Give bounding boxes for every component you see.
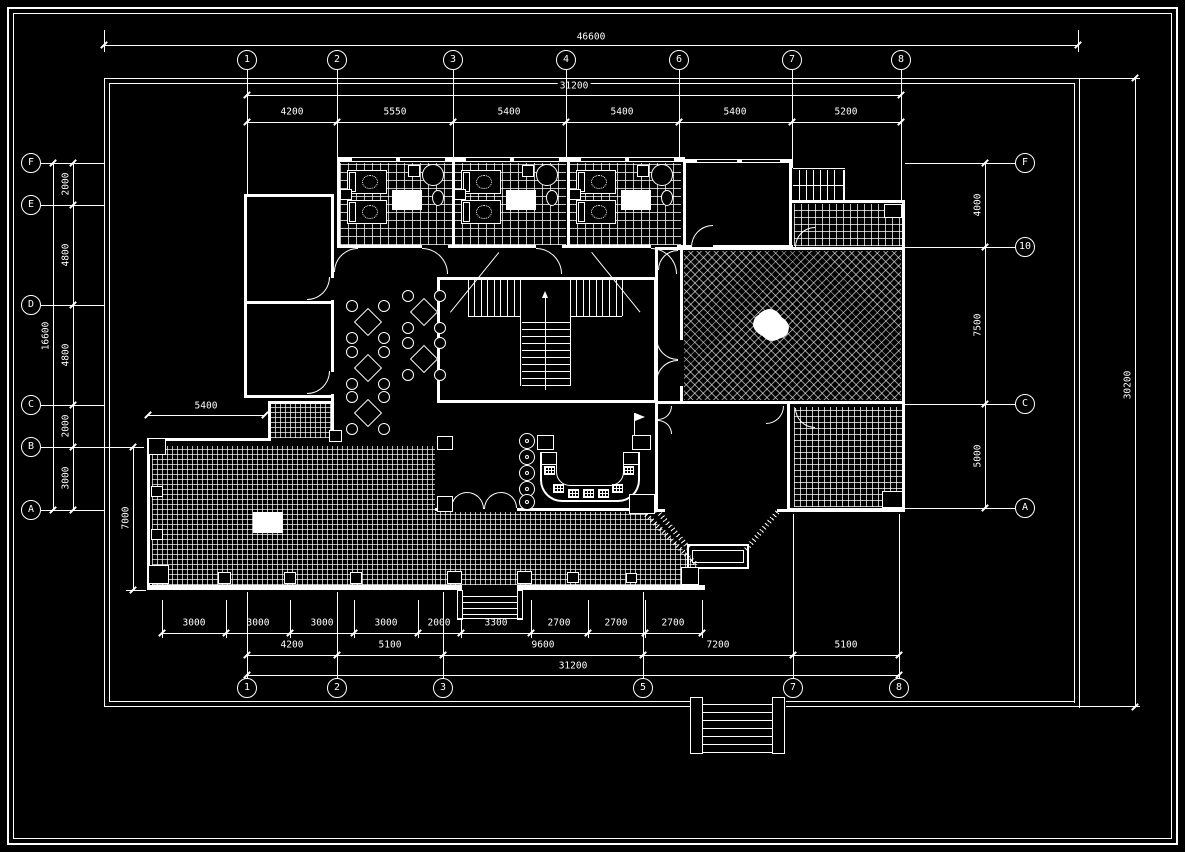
grid-bubble: A bbox=[21, 500, 41, 520]
entry-door-leaf bbox=[484, 492, 501, 509]
grid-bubble: 5 bbox=[633, 678, 653, 698]
wall bbox=[244, 395, 334, 398]
grid-bubble: 8 bbox=[889, 678, 909, 698]
stair-edge bbox=[793, 168, 845, 169]
column bbox=[284, 572, 296, 584]
stair-rail bbox=[843, 170, 845, 202]
lounge-chair bbox=[346, 346, 358, 358]
stair-step bbox=[522, 329, 570, 330]
grid-line bbox=[247, 70, 248, 194]
lounge-table bbox=[410, 298, 438, 326]
dim-label: 7000 bbox=[121, 505, 132, 532]
step-stringer bbox=[457, 590, 463, 620]
dim-label: 2000 bbox=[61, 413, 72, 440]
lounge-chair bbox=[346, 300, 358, 312]
dim-ext bbox=[702, 600, 703, 638]
bed-flower bbox=[476, 175, 492, 189]
window-band bbox=[514, 158, 559, 161]
step-tread bbox=[463, 614, 517, 615]
bay-window-sill-inner bbox=[692, 550, 744, 563]
dim-ext bbox=[1080, 706, 1140, 707]
grid-bubble: 7 bbox=[782, 50, 802, 70]
grid-bubble: F bbox=[1015, 153, 1035, 173]
dining-floor-hatch bbox=[270, 404, 333, 438]
lounge-chair bbox=[378, 378, 390, 390]
lounge-chair bbox=[346, 332, 358, 344]
ext-stair-tread bbox=[703, 744, 772, 745]
dim-line bbox=[53, 163, 54, 510]
window-band bbox=[697, 160, 737, 162]
dim-label: 2000 bbox=[61, 171, 72, 198]
grid-bubble: 4 bbox=[556, 50, 576, 70]
dim-label: 31200 bbox=[558, 81, 591, 92]
wall bbox=[244, 194, 334, 197]
dim-ext bbox=[531, 600, 532, 638]
plot-boundary bbox=[109, 701, 690, 702]
window-band bbox=[581, 158, 625, 161]
grid-bubble: 3 bbox=[443, 50, 463, 70]
grid-bubble: 1 bbox=[237, 50, 257, 70]
dim-line bbox=[985, 163, 986, 508]
plot-boundary bbox=[109, 83, 110, 702]
bed-flower bbox=[591, 205, 607, 219]
grid-line bbox=[905, 247, 1016, 248]
column bbox=[681, 567, 699, 585]
bed-pillow bbox=[349, 202, 356, 222]
bay-wall-band bbox=[744, 510, 780, 552]
ext-stair-tread bbox=[703, 720, 772, 721]
dim-label: 46600 bbox=[575, 32, 608, 43]
floorplan-canvas: 4660031200420055505400540054005200123467… bbox=[0, 0, 1185, 852]
lounge-chair bbox=[402, 337, 414, 349]
stair-step bbox=[522, 371, 570, 372]
lounge-chair bbox=[402, 322, 414, 334]
dim-label: 5400 bbox=[722, 107, 749, 118]
stair-step bbox=[622, 280, 623, 316]
stair-step bbox=[522, 385, 570, 386]
ext-stair-edge bbox=[703, 752, 772, 753]
planter-plant-core bbox=[525, 500, 529, 504]
stair-edge bbox=[570, 316, 622, 317]
dining-floor-hatch bbox=[152, 446, 435, 585]
step-stringer bbox=[517, 590, 523, 620]
stair-step bbox=[602, 280, 603, 316]
grid-line bbox=[443, 592, 444, 678]
bar-end-cap bbox=[541, 452, 557, 465]
dim-tick bbox=[1131, 703, 1139, 711]
dim-line bbox=[247, 675, 899, 676]
dim-label: 3000 bbox=[373, 618, 400, 629]
window-band bbox=[400, 158, 445, 161]
column bbox=[447, 571, 462, 584]
dim-label: 2700 bbox=[660, 618, 687, 629]
dim-ext bbox=[354, 600, 355, 638]
lounge-chair bbox=[434, 337, 446, 349]
dim-line bbox=[247, 122, 901, 123]
grid-bubble: 7 bbox=[783, 678, 803, 698]
grid-bubble: 2 bbox=[327, 678, 347, 698]
wall bbox=[244, 301, 334, 304]
lounge-chair bbox=[346, 391, 358, 403]
stair-step bbox=[522, 322, 570, 323]
dim-line bbox=[104, 45, 1078, 46]
planter-plant-core bbox=[525, 439, 529, 443]
grid-bubble: 6 bbox=[669, 50, 689, 70]
step-tread bbox=[463, 608, 517, 609]
basin bbox=[408, 165, 420, 177]
grid-bubble: 8 bbox=[891, 50, 911, 70]
dim-ext bbox=[162, 600, 163, 638]
floor-clear-patch bbox=[621, 190, 651, 210]
grid-line bbox=[104, 447, 144, 448]
dim-label: 5400 bbox=[193, 401, 220, 412]
dim-label: 9600 bbox=[530, 640, 557, 651]
lounge-chair bbox=[378, 346, 390, 358]
step-tread bbox=[463, 596, 517, 597]
plot-boundary bbox=[104, 78, 1080, 79]
stair-step bbox=[583, 280, 584, 316]
dim-label: 3000 bbox=[245, 618, 272, 629]
room-door-arc bbox=[307, 277, 330, 300]
plot-boundary bbox=[786, 706, 1080, 707]
room-door-arc bbox=[536, 248, 562, 274]
dim-line bbox=[148, 415, 265, 416]
wall bbox=[331, 194, 334, 278]
nightstand bbox=[454, 189, 466, 200]
stair-step bbox=[576, 280, 577, 316]
bar-stool bbox=[553, 484, 564, 493]
round-table bbox=[422, 164, 444, 186]
lounge-chair bbox=[378, 300, 390, 312]
stair-step bbox=[487, 280, 488, 316]
hall-floor-hatch bbox=[684, 251, 901, 400]
basin bbox=[522, 165, 534, 177]
grid-line bbox=[905, 508, 1016, 509]
ext-stair-stringer bbox=[690, 697, 703, 754]
grid-line bbox=[793, 514, 794, 678]
stair-rail bbox=[793, 185, 845, 186]
grid-line bbox=[905, 404, 1016, 405]
window-band bbox=[742, 160, 780, 162]
grid-bubble: 3 bbox=[433, 678, 453, 698]
grid-bubble: F bbox=[21, 153, 41, 173]
column bbox=[350, 572, 362, 584]
plot-boundary bbox=[1074, 83, 1075, 703]
grid-bubble: C bbox=[1015, 394, 1035, 414]
basin bbox=[637, 165, 649, 177]
wall bbox=[654, 277, 657, 403]
grid-bubble: E bbox=[21, 195, 41, 215]
bar-counter-inner bbox=[556, 452, 624, 486]
stair-step bbox=[500, 280, 501, 316]
wall bbox=[655, 247, 905, 250]
dim-label: 3000 bbox=[61, 465, 72, 492]
stair-step bbox=[474, 280, 475, 316]
lounge-table bbox=[354, 399, 382, 427]
plot-boundary bbox=[1079, 78, 1080, 708]
column bbox=[632, 435, 651, 450]
door-arc bbox=[656, 360, 678, 382]
stair-step bbox=[481, 280, 482, 316]
wall bbox=[787, 403, 790, 512]
wall bbox=[244, 194, 247, 398]
stair-rail bbox=[570, 280, 571, 386]
stair-step bbox=[522, 357, 570, 358]
ext-stair-tread bbox=[703, 736, 772, 737]
ext-stair-tread bbox=[703, 728, 772, 729]
bed-flower bbox=[476, 205, 492, 219]
wall bbox=[437, 277, 657, 280]
bar-stool bbox=[612, 484, 623, 493]
dim-label: 30200 bbox=[1123, 369, 1134, 402]
lounge-chair bbox=[434, 322, 446, 334]
entry-door-leaf bbox=[501, 492, 517, 508]
column bbox=[882, 491, 903, 508]
stair-arrow bbox=[542, 291, 548, 298]
round-table bbox=[651, 164, 673, 186]
dim-label: 3300 bbox=[483, 618, 510, 629]
dim-label: 5550 bbox=[382, 107, 409, 118]
stair-edge bbox=[468, 316, 520, 317]
grid-bubble: B bbox=[21, 437, 41, 457]
wall bbox=[562, 245, 651, 248]
bar-stool bbox=[544, 466, 555, 475]
wall bbox=[683, 159, 686, 248]
grid-line bbox=[792, 70, 793, 168]
stair-step bbox=[514, 280, 515, 316]
dim-label: 2700 bbox=[546, 618, 573, 629]
bar-stool bbox=[598, 489, 609, 498]
dim-label: 5200 bbox=[833, 107, 860, 118]
wall bbox=[517, 585, 705, 590]
round-table bbox=[536, 164, 558, 186]
room-door-arc bbox=[691, 225, 713, 247]
grid-line bbox=[643, 592, 644, 678]
room-door-arc bbox=[307, 371, 330, 394]
column bbox=[329, 430, 342, 442]
dim-line bbox=[1135, 78, 1136, 707]
lounge-chair bbox=[346, 378, 358, 390]
stair-step bbox=[522, 364, 570, 365]
bar-stool bbox=[623, 466, 634, 475]
wall bbox=[791, 200, 905, 203]
column bbox=[626, 573, 637, 583]
stair-step bbox=[596, 280, 597, 316]
wall bbox=[790, 508, 905, 512]
planter-plant-core bbox=[525, 471, 529, 475]
wall bbox=[437, 400, 657, 403]
dim-label: 4000 bbox=[973, 192, 984, 219]
lounge-table bbox=[354, 308, 382, 336]
column bbox=[629, 494, 655, 514]
bed-pillow bbox=[463, 202, 470, 222]
dim-ext bbox=[645, 600, 646, 638]
dim-label: 7500 bbox=[973, 312, 984, 339]
dim-ext bbox=[1080, 78, 1140, 79]
bar-end-cap bbox=[623, 452, 639, 465]
lounge-chair bbox=[434, 369, 446, 381]
column bbox=[517, 571, 532, 584]
planter-plant-core bbox=[525, 455, 529, 459]
dim-label: 5000 bbox=[973, 443, 984, 470]
dim-line bbox=[247, 655, 899, 656]
bar-stool bbox=[568, 489, 579, 498]
bed-pillow bbox=[578, 202, 585, 222]
cad-floorplan-sheet: 4660031200420055505400540054005200123467… bbox=[0, 0, 1185, 852]
lounge-chair bbox=[434, 290, 446, 302]
stair-step bbox=[589, 280, 590, 316]
dim-label: 31200 bbox=[557, 661, 590, 672]
dim-label: 4800 bbox=[61, 342, 72, 369]
dining-clear-patch bbox=[253, 512, 283, 533]
column bbox=[218, 572, 231, 584]
floor-clear-patch bbox=[506, 190, 536, 210]
dim-line bbox=[73, 163, 74, 510]
column bbox=[151, 529, 163, 540]
dim-label: 3000 bbox=[181, 618, 208, 629]
lounge-chair bbox=[402, 290, 414, 302]
dim-line bbox=[162, 633, 702, 634]
planter-plant-core bbox=[525, 487, 529, 491]
wall bbox=[337, 245, 422, 248]
entry-door-leaf bbox=[451, 492, 467, 508]
grid-line bbox=[905, 163, 1016, 164]
dim-ext bbox=[418, 600, 419, 638]
bed-flower bbox=[591, 175, 607, 189]
ext-stair-tread bbox=[703, 712, 772, 713]
dim-ext bbox=[226, 600, 227, 638]
grid-bubble: C bbox=[21, 395, 41, 415]
grid-line bbox=[247, 592, 248, 678]
dim-ext bbox=[126, 590, 146, 591]
room-door-arc bbox=[422, 248, 448, 274]
grid-bubble: 2 bbox=[327, 50, 347, 70]
dim-ext bbox=[588, 600, 589, 638]
column bbox=[567, 572, 579, 583]
dim-label: 5400 bbox=[496, 107, 523, 118]
nightstand bbox=[569, 189, 581, 200]
grid-line bbox=[901, 70, 902, 202]
ext-stair-stringer bbox=[772, 697, 785, 754]
column bbox=[884, 204, 902, 218]
dim-label: 3000 bbox=[309, 618, 336, 629]
grid-line bbox=[337, 592, 338, 678]
grid-bubble: D bbox=[21, 295, 41, 315]
lounge-chair bbox=[378, 423, 390, 435]
plot-boundary bbox=[109, 83, 1075, 84]
plot-boundary bbox=[104, 706, 690, 707]
column bbox=[148, 565, 169, 584]
dim-line bbox=[247, 95, 901, 96]
grid-line bbox=[899, 514, 900, 678]
window-band bbox=[352, 158, 396, 161]
stair-step bbox=[522, 336, 570, 337]
grid-line bbox=[566, 70, 567, 158]
grid-line bbox=[453, 70, 454, 158]
wall bbox=[331, 300, 334, 372]
room-door-leaf bbox=[658, 406, 672, 420]
grid-bubble: A bbox=[1015, 498, 1035, 518]
plot-boundary bbox=[786, 701, 1075, 702]
bed-flower bbox=[362, 205, 378, 219]
nightstand bbox=[340, 189, 352, 200]
lounge-table bbox=[410, 345, 438, 373]
stair-rail bbox=[520, 280, 521, 386]
column bbox=[437, 436, 453, 450]
window-band bbox=[466, 158, 510, 161]
stair-step bbox=[522, 350, 570, 351]
door-arc bbox=[656, 338, 678, 360]
wall bbox=[680, 250, 683, 340]
stair-step bbox=[609, 280, 610, 316]
dim-label: 5100 bbox=[377, 640, 404, 651]
ext-stair-tread bbox=[703, 704, 772, 705]
dim-ext bbox=[290, 600, 291, 638]
wall bbox=[448, 245, 536, 248]
column bbox=[537, 435, 554, 450]
window-band bbox=[629, 158, 674, 161]
column bbox=[151, 486, 163, 497]
lounge-table bbox=[354, 354, 382, 382]
stair-arrow-line bbox=[545, 298, 546, 390]
plot-boundary bbox=[104, 78, 105, 707]
step-tread bbox=[463, 602, 517, 603]
stair-step bbox=[507, 280, 508, 316]
floor-clear-patch bbox=[392, 190, 422, 210]
grid-bubble: 10 bbox=[1015, 237, 1035, 257]
room-door-arc bbox=[766, 406, 784, 424]
wall bbox=[789, 159, 792, 249]
column bbox=[148, 438, 166, 455]
column bbox=[437, 496, 453, 512]
dim-label: 2700 bbox=[603, 618, 630, 629]
bed-flower bbox=[362, 175, 378, 189]
lounge-chair bbox=[378, 391, 390, 403]
grid-bubble: 1 bbox=[237, 678, 257, 698]
dim-line bbox=[133, 447, 134, 590]
dim-label: 5400 bbox=[609, 107, 636, 118]
grid-line bbox=[679, 70, 680, 158]
entry-door-leaf bbox=[467, 492, 484, 509]
stair-step bbox=[522, 343, 570, 344]
stair-step bbox=[494, 280, 495, 316]
dim-label: 7200 bbox=[705, 640, 732, 651]
stair-step bbox=[522, 378, 570, 379]
grid-line bbox=[337, 70, 338, 158]
lounge-chair bbox=[346, 423, 358, 435]
wall bbox=[655, 401, 905, 404]
dim-label: 4200 bbox=[279, 107, 306, 118]
wall bbox=[147, 585, 462, 590]
step-edge bbox=[457, 618, 523, 619]
dim-label: 4200 bbox=[279, 640, 306, 651]
bar-stool bbox=[583, 489, 594, 498]
lounge-chair bbox=[378, 332, 390, 344]
room-door-leaf bbox=[658, 420, 672, 434]
dim-label: 5100 bbox=[833, 640, 860, 651]
lounge-chair bbox=[402, 369, 414, 381]
dim-label: 16600 bbox=[41, 320, 52, 353]
lounge-door-arc bbox=[334, 248, 358, 272]
stair-step bbox=[468, 280, 469, 316]
flag-marker bbox=[635, 413, 645, 421]
dim-label: 2000 bbox=[426, 618, 453, 629]
dim-label: 4800 bbox=[61, 242, 72, 269]
